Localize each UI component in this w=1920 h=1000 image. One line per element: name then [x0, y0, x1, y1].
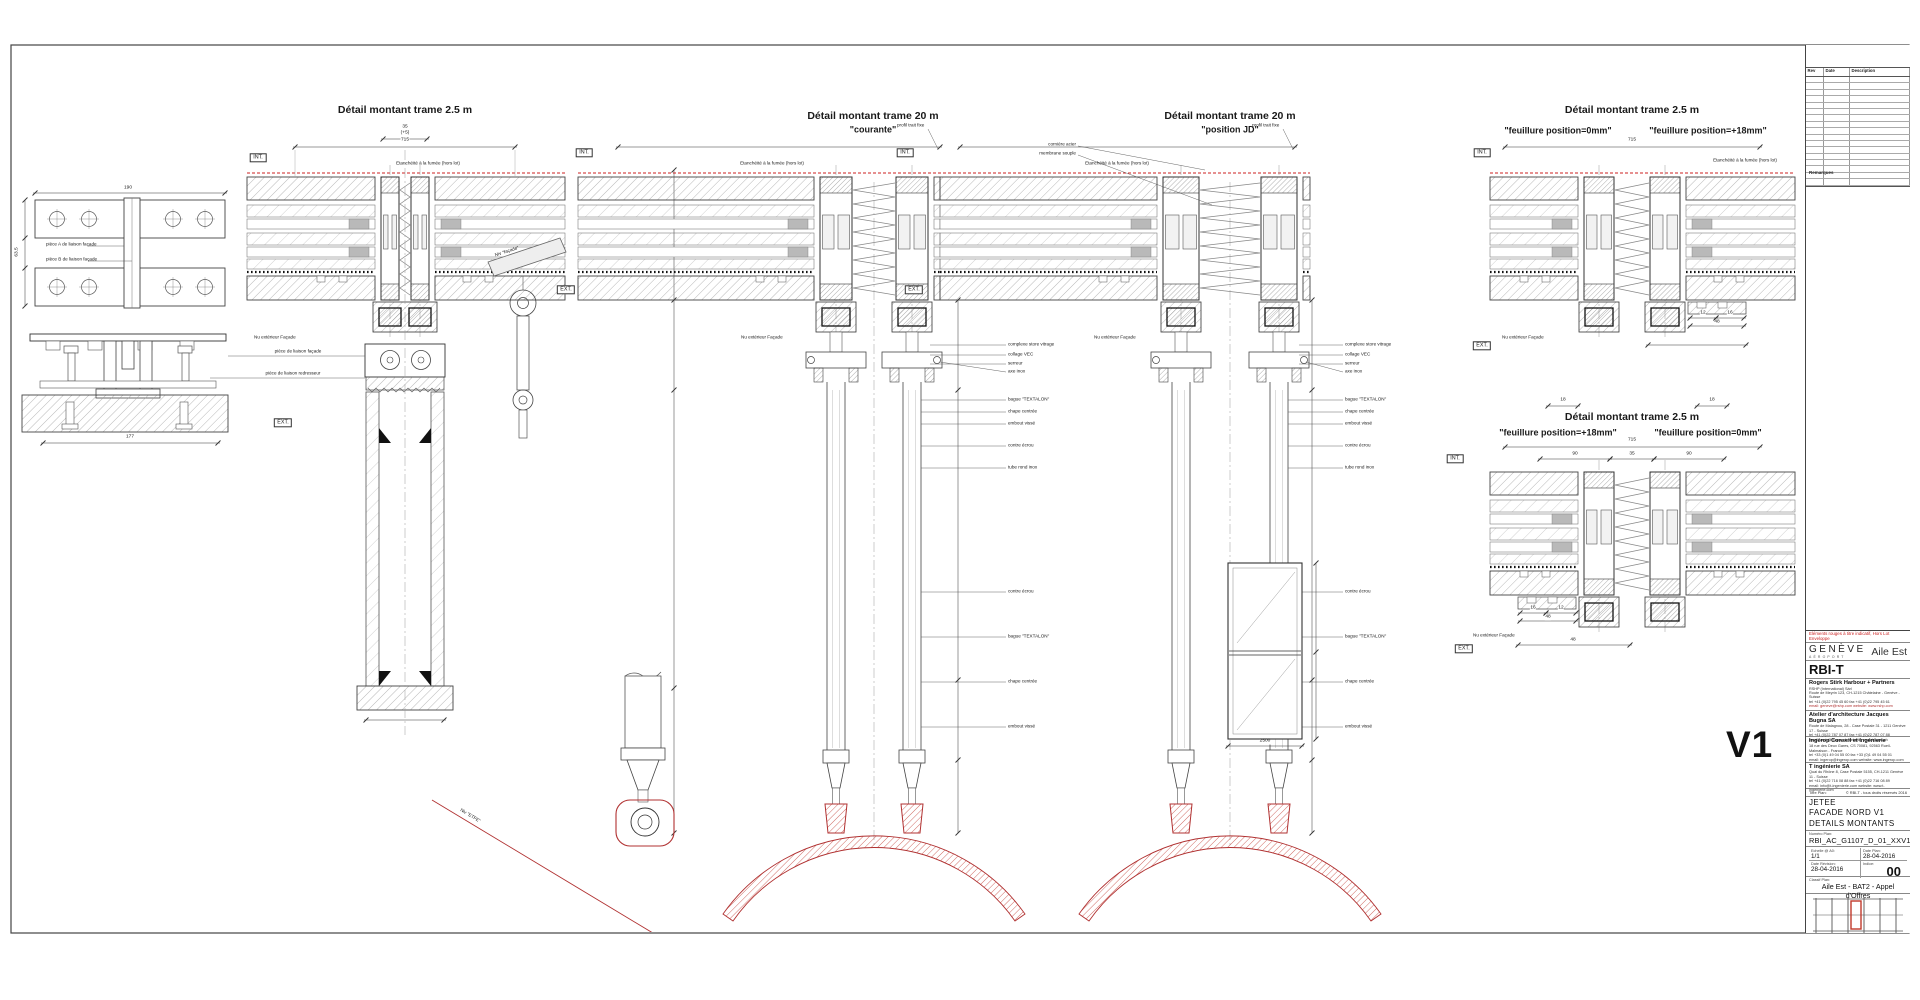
plan-number-row: Numéro Plan: RBI_AC_G1107_D_01_XXV1	[1806, 831, 1910, 847]
titre-plan-label: Titre Plan:	[1809, 790, 1827, 795]
firm-address: 18 rue des Deux Gares, CS 70081, 92563 R…	[1809, 744, 1907, 753]
date-col-header: Date	[1824, 68, 1850, 76]
title-block: Eléments rouges à titre indicatif, Hors …	[1806, 630, 1910, 933]
firm-block-ting: T ingénierie SA Quai du Rhône 8, Case Po…	[1806, 763, 1910, 789]
rev-col-header: Rev	[1806, 68, 1824, 76]
remarques-label: Remarques	[1809, 170, 1834, 175]
firm-name: Rogers Stirk Harbour + Partners	[1809, 680, 1907, 686]
indice-value: 00	[1863, 866, 1905, 878]
date-plan-value: 28-04-2016	[1863, 853, 1905, 860]
copyright-note: © RBI-T - tous droits réservés 2016	[1846, 790, 1907, 795]
revision-table: Rev Date Description	[1806, 67, 1910, 187]
geneve-aeroport-logo: GENÈVE AÉROPORT	[1809, 644, 1866, 659]
red-disclaimer: Eléments rouges à titre indicatif, Hors …	[1806, 631, 1910, 643]
plan-title-line: JETEE	[1809, 798, 1907, 809]
plan-number: RBI_AC_G1107_D_01_XXV1	[1809, 836, 1907, 845]
firm-block-rshp: Rogers Stirk Harbour + Partners RSHP (In…	[1806, 679, 1910, 711]
key-schematic	[1806, 894, 1910, 933]
firm-block-bugna: Atelier d'architecture Jacques Bugna SA …	[1806, 711, 1910, 737]
project-name: Aile Est	[1871, 646, 1907, 658]
logo-sub: AÉROPORT	[1809, 655, 1866, 659]
date-revision-cell: Date Révision: 28-04-2016	[1809, 861, 1861, 878]
description-col-header: Description	[1850, 68, 1910, 76]
logo-main: GENÈVE	[1809, 644, 1866, 655]
classif-row: Classif Plan: Aile Est - BAT2 - Appel d'…	[1806, 877, 1910, 894]
indice-cell: Indice: 00	[1861, 861, 1907, 878]
titre-plan-row: Titre Plan: © RBI-T - tous droits réserv…	[1806, 789, 1910, 797]
scale-value: 1/1	[1811, 853, 1858, 860]
scale-date-grid: Echelle @ A0: 1/1 Date Plan: 28-04-2016 …	[1806, 847, 1910, 877]
firm-name: Atelier d'architecture Jacques Bugna SA	[1809, 712, 1907, 724]
drawing-sheet: Détail montant trame 2.5 mDétail montant…	[0, 0, 1920, 1000]
logo-row: GENÈVE AÉROPORT Aile Est	[1806, 643, 1910, 661]
date-revision-value: 28-04-2016	[1811, 866, 1858, 873]
plan-title-line: DETAILS MONTANTS	[1809, 819, 1907, 830]
firm-email: email: geneve@rshp.com website: www.rshp…	[1809, 704, 1907, 708]
revision-row	[1806, 179, 1910, 185]
firm-address: Route de Malagnou, 28 - Case Postale 31 …	[1809, 724, 1907, 733]
firm-block-ingerop: Ingérop Conseil et Ingénierie 18 rue des…	[1806, 737, 1910, 763]
firm-address: Quai du Rhône 8, Case Postale 5155, CH-1…	[1809, 770, 1907, 779]
firm-address: Route de Meyrin 123, CH-1215 Châtelaine …	[1809, 691, 1907, 700]
version-mark: V1	[1726, 724, 1773, 766]
revision-table-header: Rev Date Description	[1806, 68, 1910, 77]
firm-name: Ingérop Conseil et Ingénierie	[1809, 738, 1907, 744]
plan-title-line: FACADE NORD V1	[1809, 808, 1907, 819]
firm-email: email: ingerop@ingerop.com website: www.…	[1809, 758, 1907, 762]
date-plan-cell: Date Plan: 28-04-2016	[1861, 848, 1907, 861]
scale-cell: Echelle @ A0: 1/1	[1809, 848, 1861, 861]
key-schematic-drawing	[1810, 895, 1906, 933]
plan-title: JETEE FACADE NORD V1 DETAILS MONTANTS	[1806, 797, 1910, 832]
rbit-code: RBI-T	[1806, 661, 1910, 679]
firm-name: T ingénierie SA	[1809, 764, 1907, 770]
cad-linework	[0, 0, 1920, 1000]
sheet-right-strip: Rev Date Description Remarques Eléments …	[1805, 45, 1910, 933]
